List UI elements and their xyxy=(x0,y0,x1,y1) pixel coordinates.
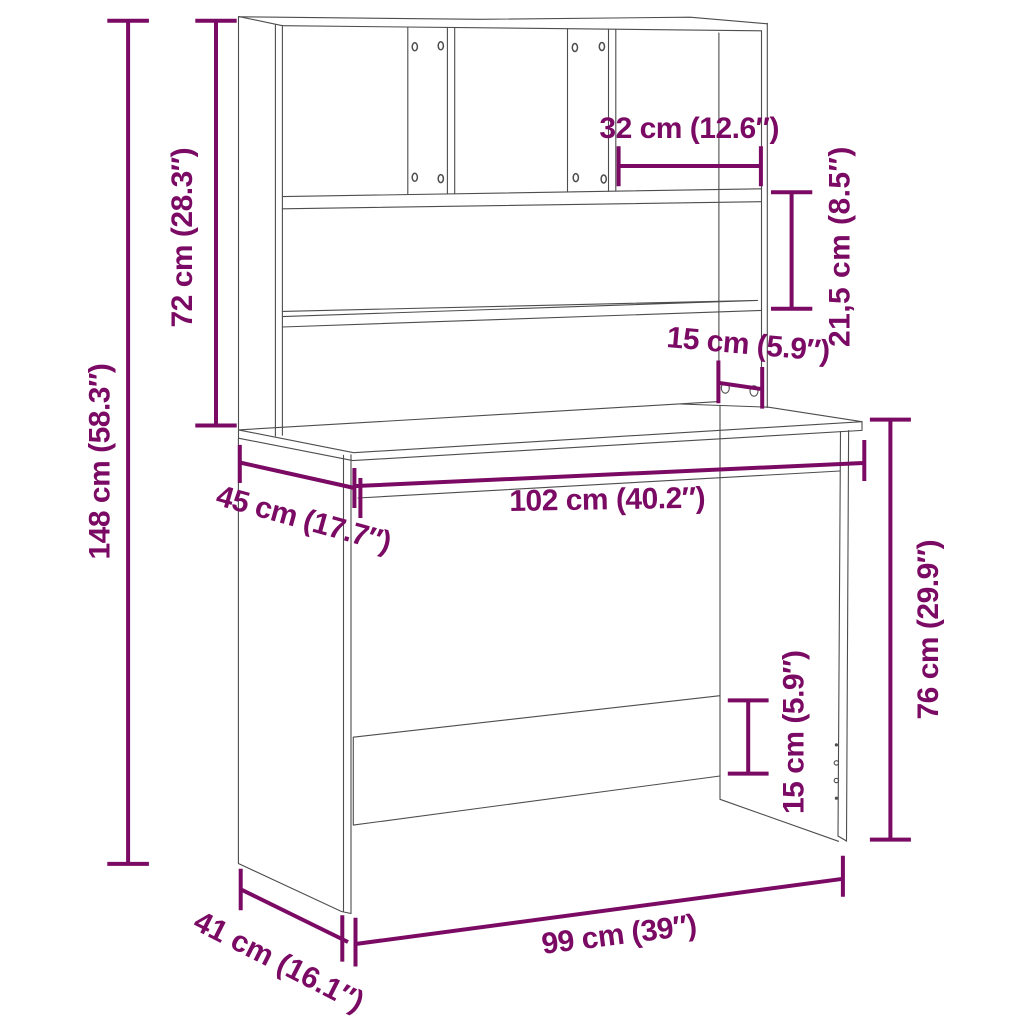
svg-text:102 cm (40.2″): 102 cm (40.2″) xyxy=(509,482,705,518)
svg-text:32 cm (12.6″): 32 cm (12.6″) xyxy=(599,112,779,145)
svg-text:15 cm (5.9″): 15 cm (5.9″) xyxy=(778,651,811,814)
svg-text:21,5 cm (8.5″): 21,5 cm (8.5″) xyxy=(824,146,857,347)
svg-text:72 cm (28.3″): 72 cm (28.3″) xyxy=(166,148,199,328)
svg-text:148 cm (58.3″): 148 cm (58.3″) xyxy=(84,364,117,560)
svg-text:76 cm (29.9″): 76 cm (29.9″) xyxy=(912,540,945,720)
